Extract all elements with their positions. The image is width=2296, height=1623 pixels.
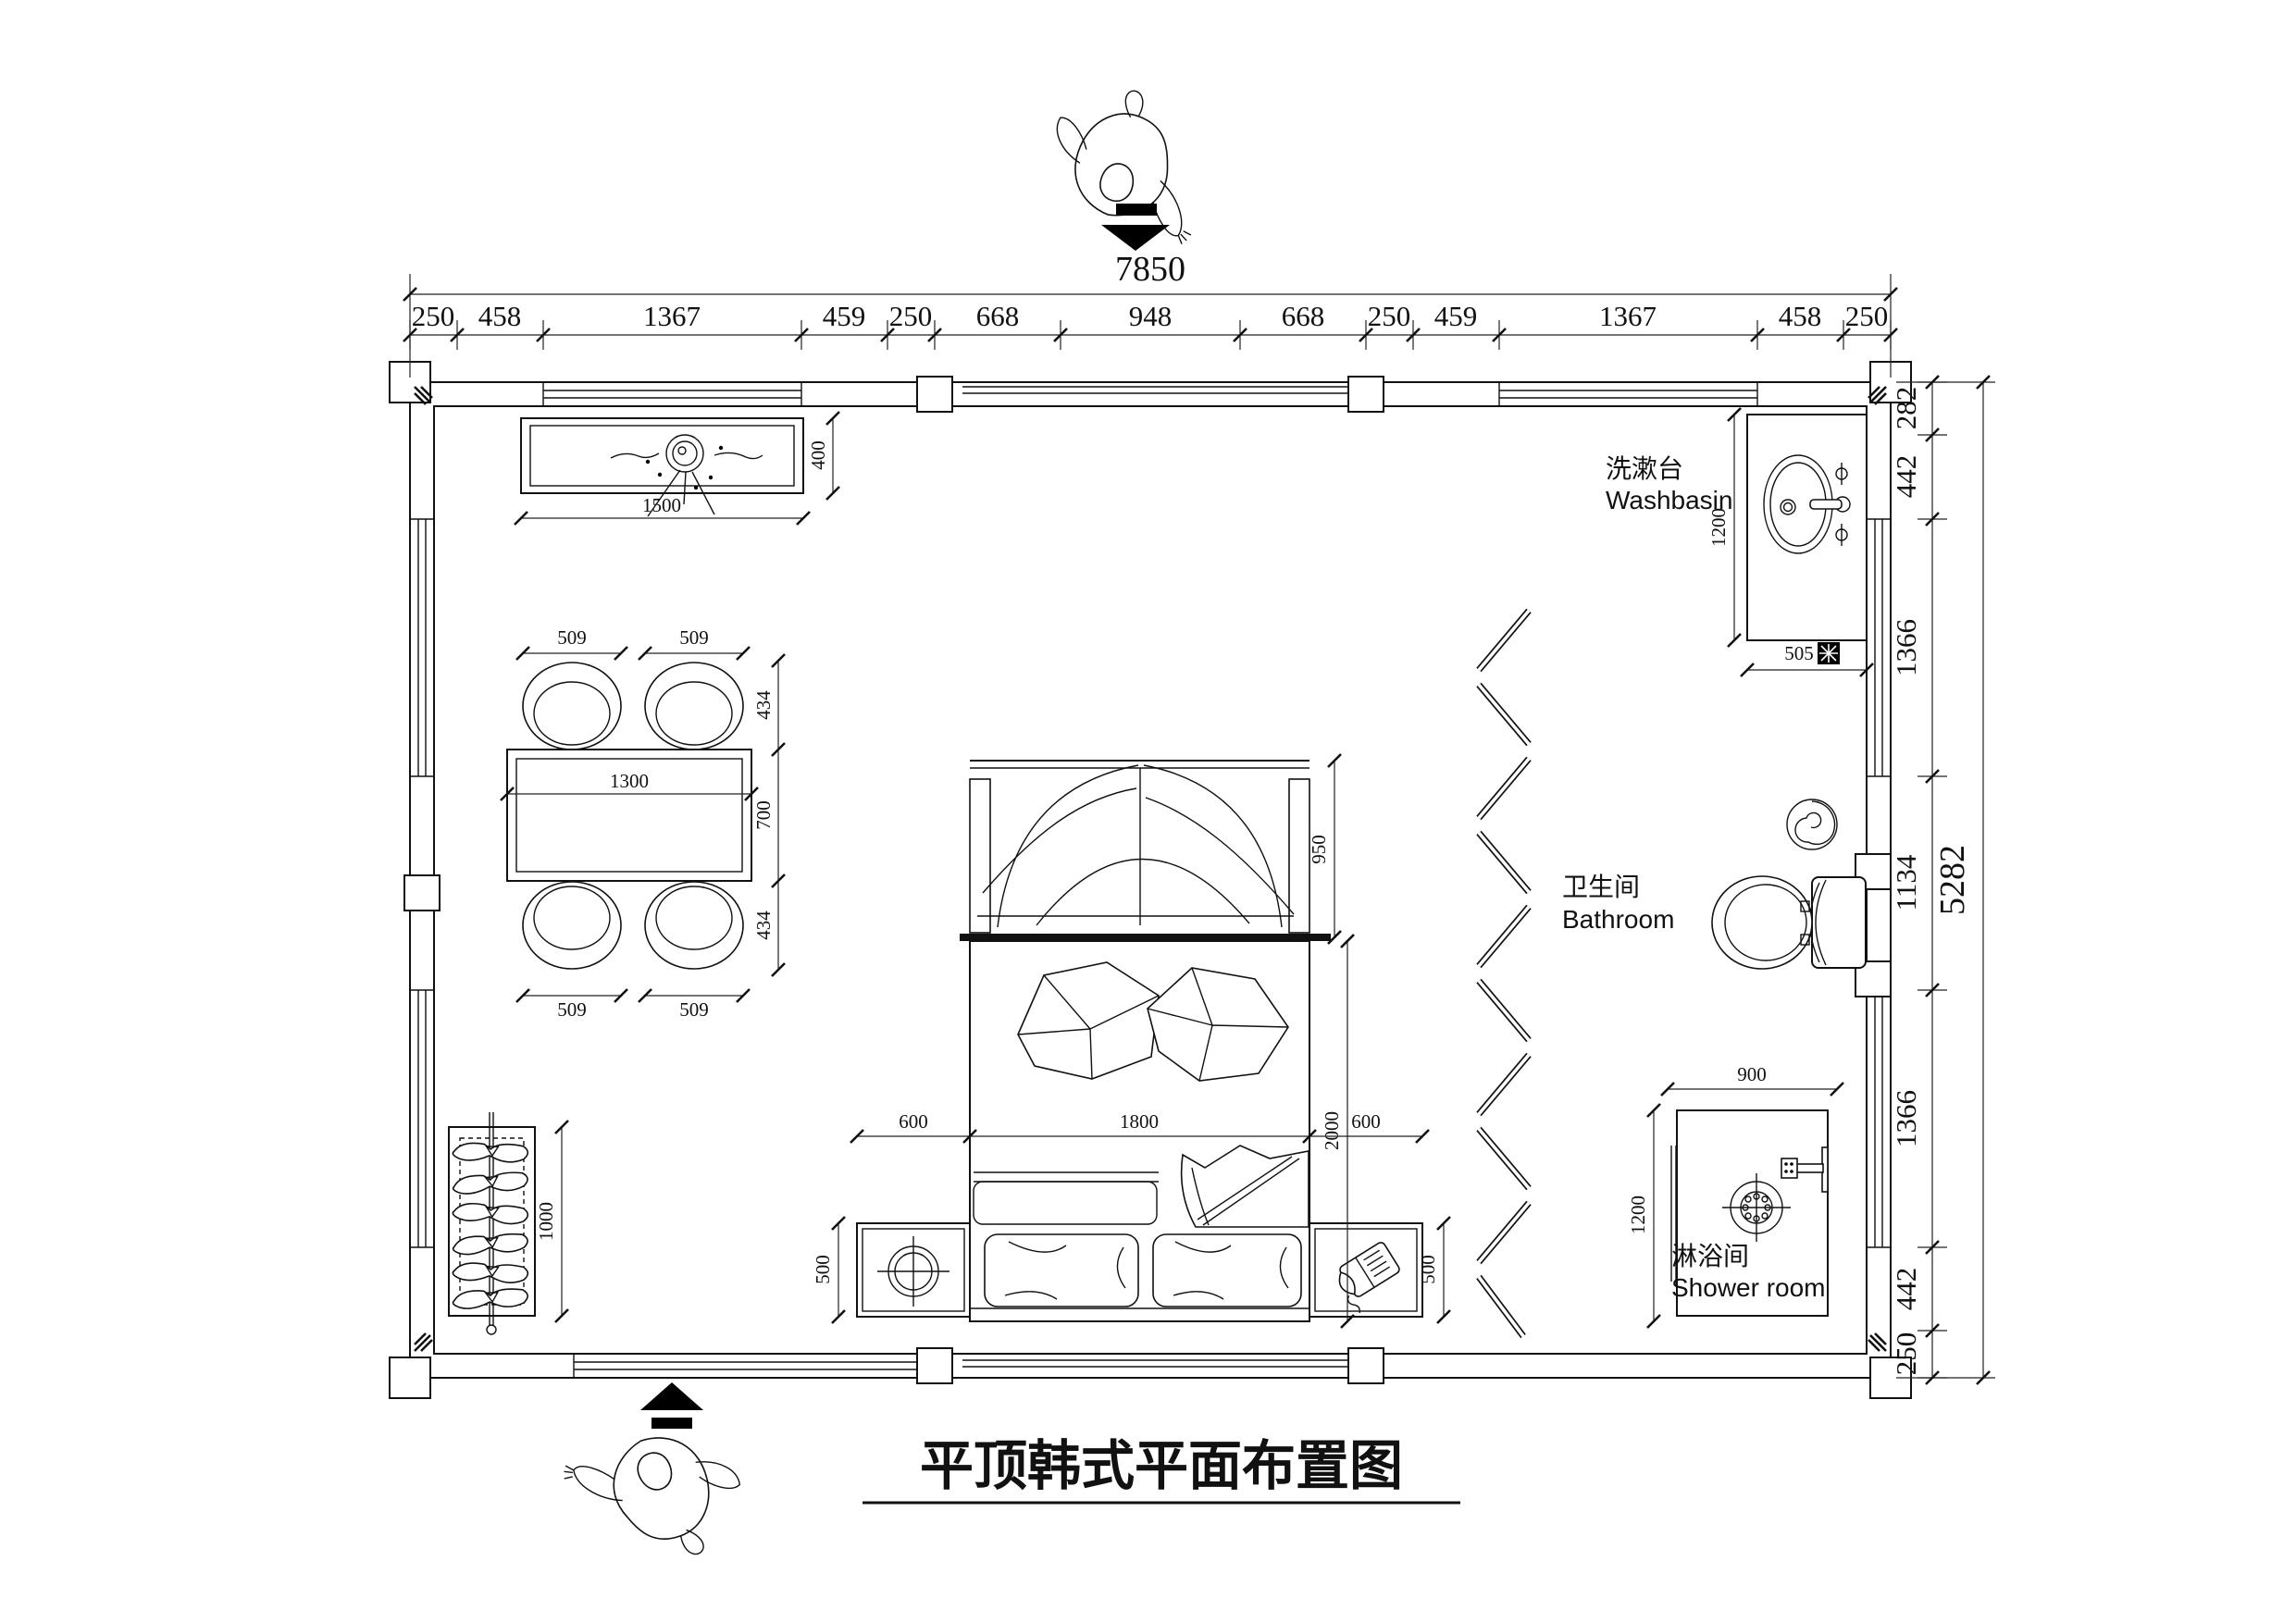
dim-nightstand-depth: 500 — [1417, 1255, 1439, 1284]
counter-cabinet: 1500 400 — [515, 412, 839, 525]
dim-top-6: 948 — [1129, 300, 1173, 332]
nightstand-right — [1309, 1223, 1422, 1317]
dim-chair-width: 509 — [557, 998, 587, 1021]
dim-nightstand-width: 600 — [899, 1110, 928, 1133]
dining-chair — [523, 882, 621, 969]
window-bottom-left — [574, 1355, 930, 1377]
dim-right-1: 442 — [1890, 455, 1922, 499]
dim-top-1: 458 — [478, 300, 522, 332]
label-shower-cn: 淋浴间 — [1671, 1242, 1749, 1270]
nightstand-left — [857, 1223, 970, 1317]
floor-plan-sheet: 7850 250 458 1367 459 250 668 948 668 25… — [0, 0, 2296, 1623]
exhaust-fan-icon — [1787, 799, 1837, 849]
entry-arrow-up-icon — [640, 1382, 703, 1410]
dim-counter-depth: 400 — [807, 440, 829, 470]
window-right-upper — [1868, 519, 1890, 776]
label-washbasin-cn: 洗漱台 — [1606, 454, 1683, 483]
dim-total-height: 5282 — [1933, 845, 1972, 915]
dim-top-4: 250 — [889, 300, 933, 332]
dim-chair-width: 509 — [557, 626, 587, 649]
dim-shower-width: 900 — [1737, 1063, 1767, 1085]
dimension-chain-top: 7850 250 458 1367 459 250 668 948 668 25… — [403, 250, 1897, 378]
dim-table-width: 700 — [752, 800, 775, 830]
washbasin-sink-icon — [1764, 455, 1850, 553]
dim-bed-width: 1800 — [1120, 1110, 1159, 1133]
label-bathroom-en: Bathroom — [1562, 905, 1674, 934]
dim-right-5: 442 — [1890, 1268, 1922, 1311]
bed-canopy-headboard — [960, 761, 1331, 941]
drawing-title: 平顶韩式平面布置图 — [863, 1436, 1460, 1503]
window-left-lower — [411, 990, 433, 1247]
bed-group: 950 — [812, 754, 1450, 1328]
dim-right-3: 1134 — [1890, 854, 1922, 911]
dining-chair — [645, 663, 743, 750]
dim-top-9: 459 — [1434, 300, 1478, 332]
entry-arrow-bar-top — [1116, 204, 1157, 216]
label-washbasin-en: Washbasin — [1606, 486, 1732, 514]
dim-chair-width: 509 — [679, 998, 709, 1021]
dim-nightstand-width: 600 — [1351, 1110, 1381, 1133]
dim-right-0: 282 — [1890, 387, 1922, 430]
entry-bottom — [560, 1382, 760, 1592]
opening-top-entry — [962, 384, 1366, 406]
toilet-icon — [1712, 876, 1866, 969]
dim-counter-width: 1500 — [642, 494, 681, 516]
person-bottom-icon — [560, 1402, 760, 1592]
dim-top-11: 458 — [1779, 300, 1822, 332]
clothes-rack: 1000 — [449, 1112, 568, 1334]
window-top-right — [1499, 383, 1757, 405]
dim-top-8: 250 — [1368, 300, 1411, 332]
floor-plan-drawing: 7850 250 458 1367 459 250 668 948 668 25… — [0, 0, 2296, 1623]
label-bathroom-cn: 卫生间 — [1562, 873, 1640, 901]
dim-top-2: 1367 — [643, 300, 701, 332]
shower-drain-icon — [1722, 1173, 1791, 1242]
dim-top-0: 250 — [412, 300, 455, 332]
title-text: 平顶韩式平面布置图 — [920, 1436, 1403, 1496]
dim-top-12: 250 — [1845, 300, 1889, 332]
dim-chair-depth: 434 — [752, 690, 775, 720]
dimension-chain-right: 282 442 1366 1134 1366 442 250 5282 — [1890, 376, 1995, 1384]
washbasin-area: 1200 505 洗漱台 Washbasin — [1606, 408, 1873, 676]
label-shower-en: Shower room — [1671, 1273, 1826, 1302]
entry-arrow-down-icon — [1101, 225, 1170, 251]
dim-drain-offset: 505 — [1784, 642, 1814, 664]
dim-chair-depth: 434 — [752, 911, 775, 940]
dim-total-width: 7850 — [1115, 250, 1185, 289]
dim-top-5: 668 — [976, 300, 1020, 332]
shower-area: 900 1200 淋浴间 Shower room — [1627, 1063, 1843, 1328]
dim-top-3: 459 — [823, 300, 866, 332]
dim-top-7: 668 — [1282, 300, 1325, 332]
floor-drain-icon — [1818, 642, 1840, 664]
bathroom-area: 卫生间 Bathroom — [1562, 799, 1866, 969]
dim-nightstand-depth: 500 — [812, 1255, 834, 1284]
dining-set: 1300 509 509 509 509 434 700 434 — [501, 626, 785, 1021]
dim-top-10: 1367 — [1599, 300, 1657, 332]
window-left-upper — [411, 519, 433, 776]
window-top-left — [543, 383, 801, 405]
entry-top — [1036, 74, 1223, 251]
dining-chair — [523, 663, 621, 750]
dining-chair — [645, 882, 743, 969]
entry-arrow-bar-bottom — [652, 1418, 692, 1429]
dim-rack-length: 1000 — [535, 1202, 557, 1241]
folding-screen — [1479, 611, 1529, 1336]
dim-right-6: 250 — [1890, 1332, 1922, 1376]
dim-table-length: 1300 — [610, 770, 649, 792]
dim-shower-depth: 1200 — [1627, 1196, 1649, 1234]
dim-bed-length: 2000 — [1321, 1111, 1343, 1150]
dim-chair-width: 509 — [679, 626, 709, 649]
shower-head-icon — [1781, 1147, 1828, 1192]
dim-right-2: 1366 — [1890, 619, 1922, 676]
opening-bottom — [962, 1356, 1366, 1378]
window-right-lower — [1868, 990, 1890, 1247]
dim-canopy-depth: 950 — [1308, 835, 1330, 864]
person-top-icon — [1036, 74, 1223, 246]
dim-right-4: 1366 — [1890, 1090, 1922, 1147]
